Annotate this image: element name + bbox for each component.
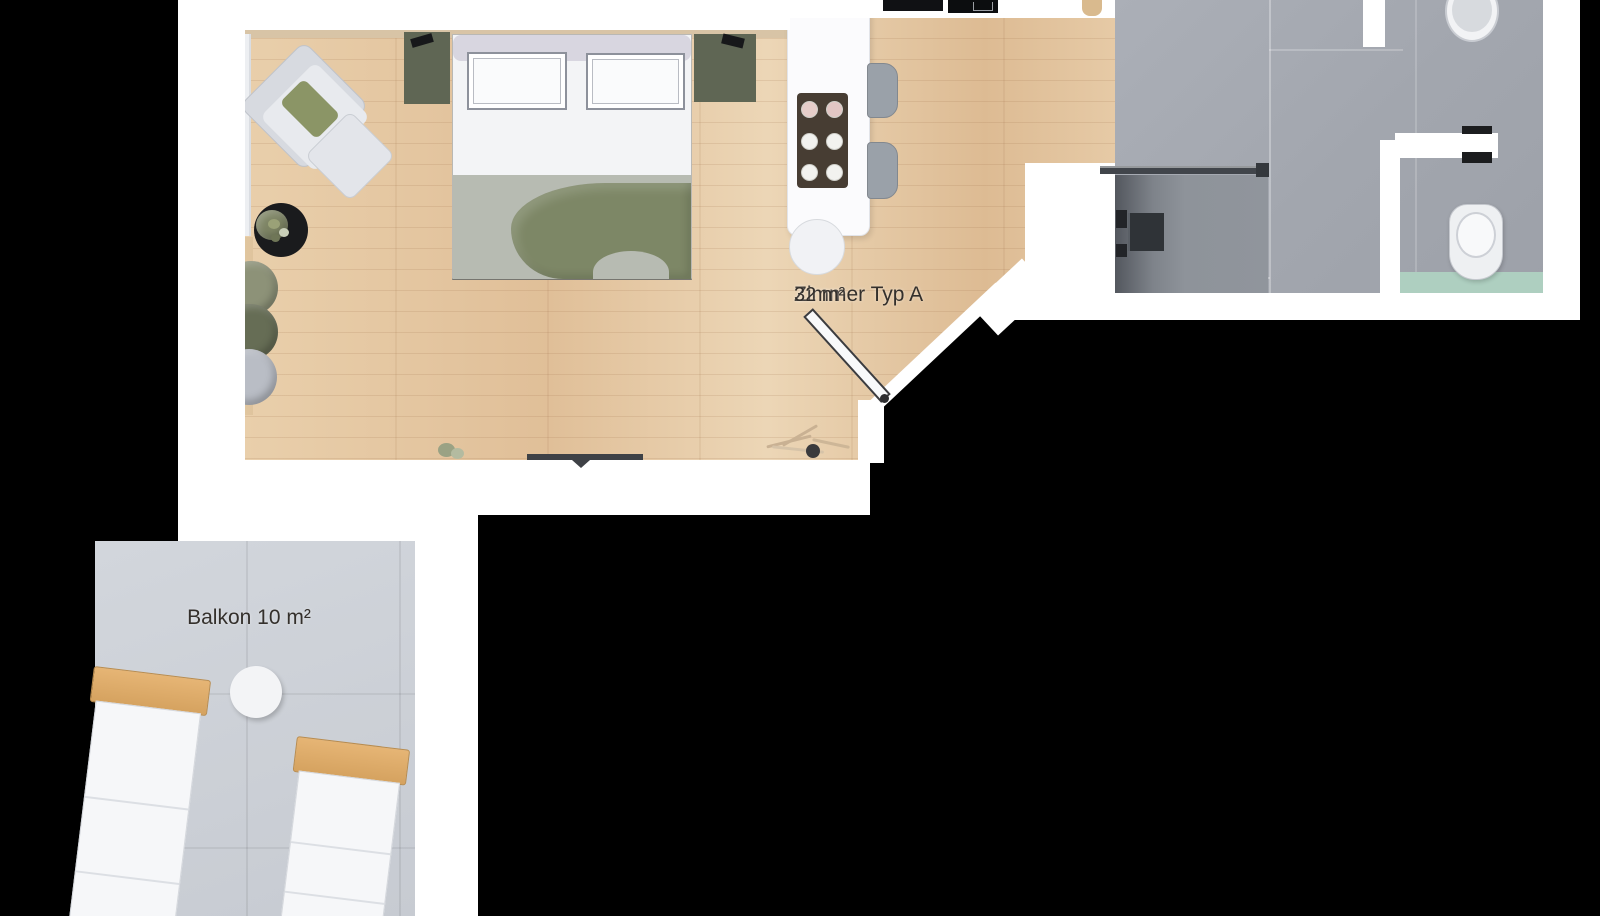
cushion-seam bbox=[291, 841, 391, 855]
plate bbox=[826, 133, 843, 150]
double-bed bbox=[452, 34, 692, 280]
wc-partition-top bbox=[1363, 0, 1385, 47]
bathroom-right-wall bbox=[1543, 0, 1580, 320]
cushion-seam bbox=[85, 796, 189, 811]
room-label-balkon: Balkon 10 m² bbox=[154, 606, 344, 630]
cushion-seam bbox=[76, 870, 180, 885]
tile-grout-line bbox=[1269, 0, 1271, 293]
bathroom-left-wall bbox=[1025, 163, 1115, 300]
wall-left bbox=[178, 0, 245, 460]
plate bbox=[801, 101, 818, 118]
table-plant bbox=[279, 228, 289, 237]
wall-top bbox=[178, 0, 790, 30]
room-area: 32 m² bbox=[794, 282, 845, 308]
floor-vase bbox=[806, 444, 820, 458]
kitchen-faucet bbox=[1082, 0, 1102, 16]
floorplan-canvas: Zimmer Typ A 32 m² Balkon 10 m² bbox=[0, 0, 1600, 916]
wc-partition-bottom bbox=[1380, 140, 1400, 293]
kitchen-sink-rim bbox=[973, 2, 993, 11]
cushion-seam bbox=[285, 891, 385, 905]
lounger-cushion bbox=[67, 700, 201, 916]
shower-drain bbox=[1128, 213, 1164, 251]
plate bbox=[801, 133, 818, 150]
table-plant bbox=[271, 234, 280, 242]
balcony-round-table bbox=[230, 666, 282, 718]
towel bbox=[1462, 126, 1492, 134]
table-pedestal bbox=[789, 219, 845, 275]
cooktop bbox=[883, 0, 943, 11]
sun-lounger-2 bbox=[274, 736, 410, 916]
shower-glass-endcap bbox=[1256, 163, 1269, 177]
balcony-threshold-wall bbox=[178, 515, 478, 541]
plate bbox=[801, 164, 818, 181]
shower-glass-partition bbox=[1100, 166, 1268, 174]
plate bbox=[826, 101, 843, 118]
table-plant bbox=[268, 219, 280, 229]
toilet-seat bbox=[1456, 212, 1496, 258]
door-hinge bbox=[880, 394, 889, 403]
towel bbox=[1462, 152, 1492, 163]
pillow-left bbox=[467, 52, 567, 110]
pillow-right bbox=[586, 53, 685, 110]
sliding-door-marker bbox=[572, 460, 590, 468]
dining-chair-2 bbox=[867, 142, 898, 199]
tile-grout-line bbox=[1269, 49, 1403, 51]
wall-bottom bbox=[178, 460, 870, 515]
small-plant bbox=[451, 448, 464, 459]
shower-control bbox=[1116, 210, 1127, 228]
lounger-cushion bbox=[279, 770, 400, 916]
serving-tray bbox=[797, 93, 848, 188]
balcony-right-wall bbox=[415, 541, 478, 916]
shower-control bbox=[1116, 244, 1127, 257]
dining-chair-1 bbox=[867, 63, 898, 118]
plate bbox=[826, 164, 843, 181]
